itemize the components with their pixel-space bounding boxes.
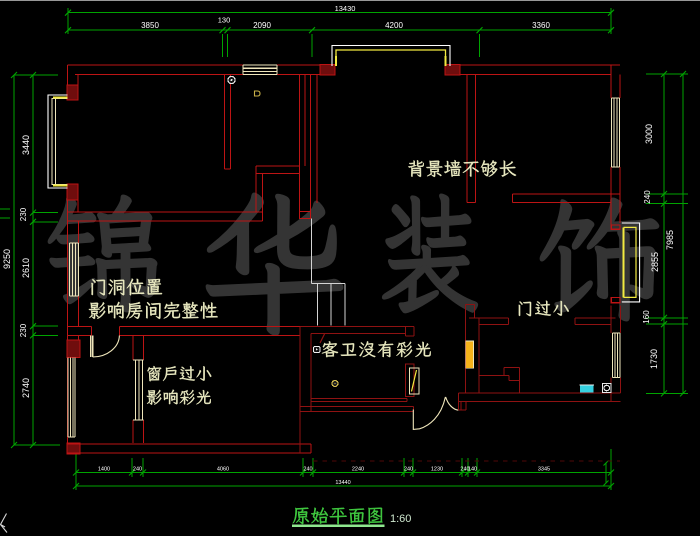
svg-text:1:60: 1:60 [390,513,411,525]
svg-text:13440: 13440 [335,480,350,486]
svg-text:1400: 1400 [98,467,110,473]
svg-text:4200: 4200 [385,21,403,30]
svg-text:2855: 2855 [650,252,660,272]
svg-text:230: 230 [19,207,28,221]
svg-text:240: 240 [303,467,312,473]
svg-text:140: 140 [468,467,477,473]
svg-text:160: 160 [642,310,651,324]
svg-text:240: 240 [133,467,142,473]
svg-text:240: 240 [404,467,413,473]
svg-text:3345: 3345 [538,467,550,473]
svg-text:9250: 9250 [2,249,12,269]
svg-text:2740: 2740 [21,378,31,398]
svg-text:240: 240 [643,190,652,204]
svg-text:2610: 2610 [21,258,31,278]
svg-text:2090: 2090 [253,21,271,30]
svg-text:130: 130 [218,16,231,25]
svg-text:13430: 13430 [335,4,356,13]
svg-text:4060: 4060 [217,467,229,473]
svg-text:3850: 3850 [141,21,159,30]
svg-text:7985: 7985 [665,230,675,250]
svg-text:3440: 3440 [21,135,31,155]
svg-text:3360: 3360 [532,21,550,30]
svg-text:1230: 1230 [431,467,443,473]
svg-text:2240: 2240 [352,467,364,473]
svg-text:230: 230 [19,323,28,337]
svg-text:1730: 1730 [649,349,659,369]
svg-text:3000: 3000 [644,124,654,144]
